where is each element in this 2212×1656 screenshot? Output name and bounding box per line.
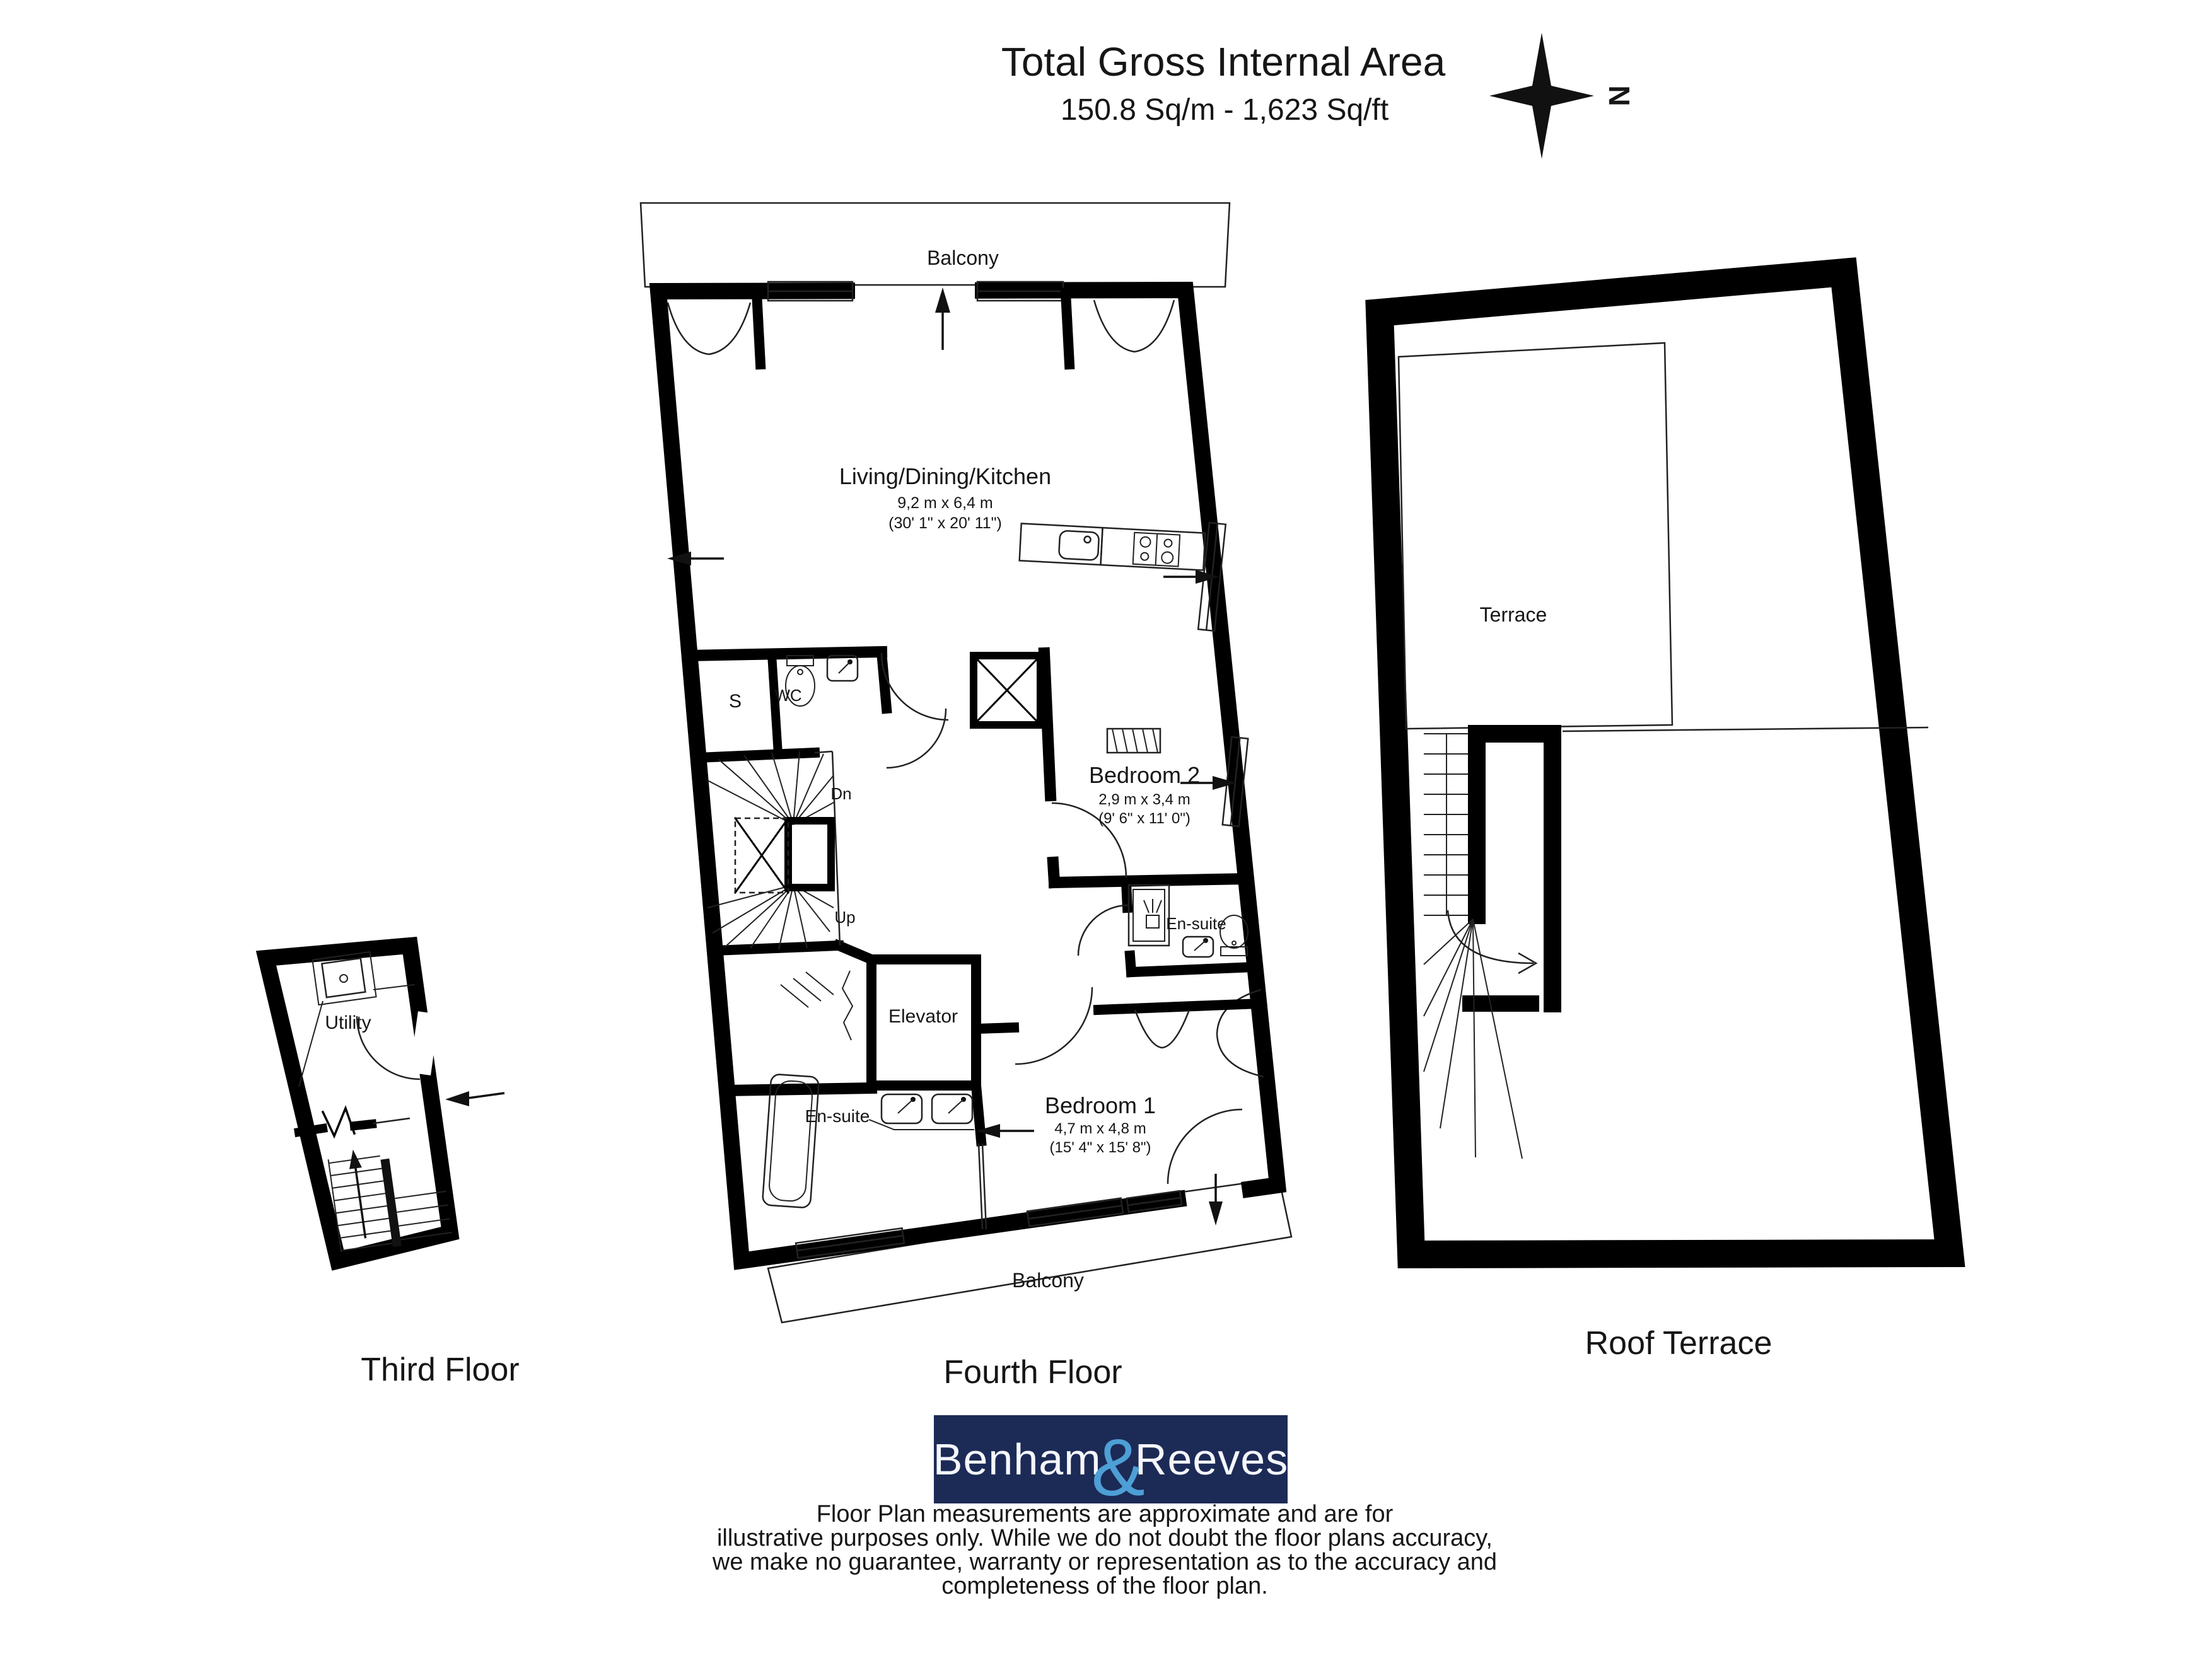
wc-label: WC	[774, 686, 801, 705]
fourth-floor-title: Fourth Floor	[943, 1354, 1122, 1391]
logo-ampersand: &	[1091, 1428, 1145, 1508]
disclaimer-line-4: completeness of the floor plan.	[941, 1573, 1268, 1599]
fourth-floor-plan: Dn Up	[641, 203, 1291, 1323]
roof-terrace-outer-walls	[1380, 272, 1950, 1254]
living-name: Living/Dining/Kitchen	[839, 463, 1051, 489]
living-imperial: (30' 1" x 20' 11")	[888, 514, 1002, 532]
ensuite-left-label: En-suite	[805, 1106, 870, 1126]
disclaimer: Floor Plan measurements are approximate …	[712, 1501, 1497, 1599]
page-title: Total Gross Internal Area	[1001, 39, 1446, 84]
elevator-label: Elevator	[888, 1006, 958, 1027]
balcony-top-label: Balcony	[927, 246, 999, 269]
hall-wall-b	[354, 1124, 372, 1126]
utility-label: Utility	[325, 1012, 371, 1033]
balcony-top-outline	[641, 203, 1230, 287]
logo-text-benham: Benham	[933, 1437, 1102, 1481]
stairs-up-label: Up	[834, 908, 855, 927]
page-subtitle: 150.8 Sq/m - 1,623 Sq/ft	[1061, 93, 1388, 127]
floorplan-canvas: Total Gross Internal Area 150.8 Sq/m - 1…	[0, 0, 2212, 1656]
terrace-label: Terrace	[1480, 603, 1547, 626]
logo-text-reeves: Reeves	[1135, 1437, 1288, 1481]
bedroom1-name: Bedroom 1	[1045, 1092, 1156, 1118]
floorplan-page: { "header": { "title": "Total Gross Inte…	[0, 0, 2212, 1656]
compass-icon: N	[1489, 33, 1636, 159]
benham-reeves-logo: Benham & Reeves	[934, 1415, 1288, 1503]
entry-arrow	[468, 1093, 504, 1098]
bedroom1-metric: 4,7 m x 4,8 m	[1054, 1120, 1146, 1137]
compass-north-label: N	[1603, 85, 1636, 106]
bedroom2-imperial: (9' 6" x 11' 0")	[1098, 810, 1190, 827]
stairs-dn-label: Dn	[830, 784, 851, 803]
disclaimer-line-2: illustrative purposes only. While we do …	[717, 1525, 1493, 1551]
bedroom2-metric: 2,9 m x 3,4 m	[1098, 791, 1190, 808]
jamb-stub-left	[757, 292, 760, 364]
third-floor-plan: Utility	[266, 946, 504, 1261]
balcony-bottom-label: Balcony	[1012, 1269, 1084, 1292]
ensuite-right-label: En-suite	[1166, 914, 1226, 933]
disclaimer-line-3: we make no guarantee, warranty or repres…	[712, 1549, 1497, 1575]
roof-terrace-title: Roof Terrace	[1585, 1325, 1773, 1362]
jamb-stub-right	[1066, 292, 1069, 364]
bedroom2-name: Bedroom 2	[1089, 762, 1200, 788]
living-metric: 9,2 m x 6,4 m	[897, 494, 992, 512]
hall-wall-a	[299, 1128, 323, 1132]
bedroom1-imperial: (15' 4" x 15' 8")	[1050, 1139, 1151, 1156]
storage-label: S	[729, 691, 742, 712]
roof-terrace-plan: Terrace	[1380, 272, 1950, 1254]
third-floor-title: Third Floor	[361, 1352, 519, 1388]
